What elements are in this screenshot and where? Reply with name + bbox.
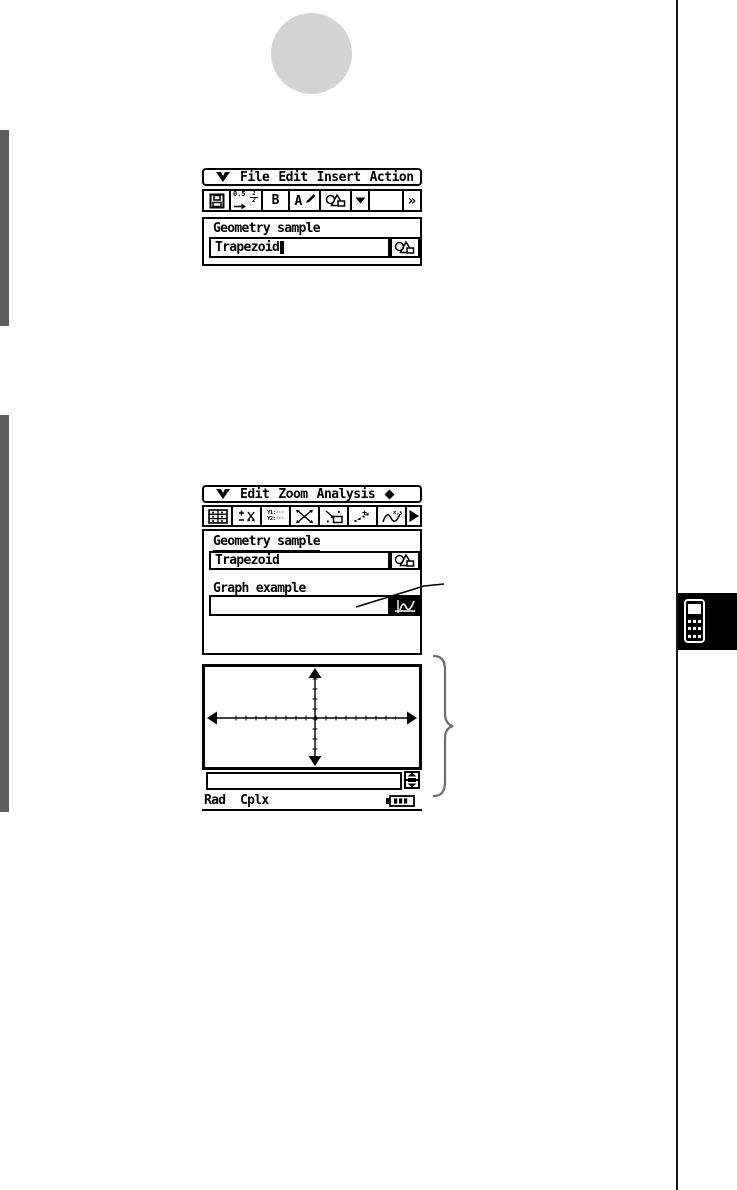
double-chevron-right-icon: » — [408, 193, 416, 209]
bold-button[interactable]: B — [263, 191, 290, 210]
screen2-geometry-link-button[interactable] — [390, 551, 420, 570]
xy-label: x,y — [393, 510, 402, 516]
zoom-box-icon — [324, 509, 344, 524]
bold-label: B — [272, 193, 280, 208]
screen2-title-label: Geometry sample — [213, 534, 320, 551]
geometry-shapes-icon — [394, 240, 416, 255]
toolbar-next-button[interactable] — [407, 507, 420, 525]
shapes-icon — [325, 193, 347, 208]
classpad-menu-icon[interactable] — [215, 488, 231, 500]
triangle-right-icon — [408, 509, 420, 523]
trace-dots-icon — [353, 509, 373, 524]
classpad-menu-icon[interactable] — [215, 171, 231, 183]
convert-arrow-icon — [234, 203, 246, 210]
menu-item-edit[interactable]: Edit — [240, 487, 269, 502]
graph-message-box[interactable] — [206, 772, 402, 790]
menu-item-zoom[interactable]: Zoom — [278, 487, 307, 502]
trace-button[interactable] — [349, 507, 378, 525]
table-icon — [208, 509, 228, 524]
frac-stack: 12 — [250, 191, 258, 204]
screen1-geometry-link-button[interactable] — [390, 237, 420, 258]
screen2-name-field[interactable]: Trapezoid — [209, 551, 390, 570]
zoom-fit-button[interactable] — [291, 507, 320, 525]
screen1-content-panel: Geometry sample Trapezoid — [202, 217, 422, 266]
zoom-box-button[interactable] — [320, 507, 349, 525]
graph-axes — [205, 667, 419, 767]
screen1-name-field[interactable]: Trapezoid — [209, 237, 390, 258]
chapter-tab — [678, 593, 737, 650]
manual-page: File Edit Insert Action 0.5 12 B — [0, 0, 737, 1190]
frac-den: 2 — [250, 197, 258, 204]
fraction-convert-button[interactable]: 0.5 12 — [231, 191, 263, 210]
menu-item-insert[interactable]: Insert — [317, 170, 361, 185]
diamond-menu-icon[interactable] — [384, 489, 395, 500]
spinner-down-button[interactable] — [404, 779, 420, 789]
frac-decimal: 0.5 — [233, 190, 246, 198]
screen1-menu-bar: File Edit Insert Action — [202, 168, 422, 186]
curly-brace — [429, 651, 457, 801]
geometry-shapes-icon — [394, 553, 416, 568]
x-axis-right-arrow — [407, 712, 417, 725]
plus-minus-swap-icon — [237, 509, 257, 524]
scroll-spinner — [404, 771, 420, 789]
curve-xy-icon: x,y — [382, 509, 402, 524]
menu-item-analysis[interactable]: Analysis — [317, 487, 376, 502]
toolbar-more-button[interactable]: » — [404, 191, 420, 210]
arrow-down-icon — [406, 780, 418, 788]
menu-item-edit[interactable]: Edit — [278, 170, 307, 185]
swap-button[interactable] — [233, 507, 262, 525]
screen2-menu-bar: Edit Zoom Analysis — [202, 485, 422, 503]
table-button[interactable] — [204, 507, 233, 525]
calculator-icon-keys — [688, 618, 701, 640]
status-bar-underline — [202, 809, 422, 811]
left-margin-bar-2 — [0, 415, 9, 812]
toolbar-dropdown-button[interactable] — [352, 191, 370, 210]
font-attributes-button[interactable]: A — [290, 191, 321, 210]
arrow-up-icon — [406, 772, 418, 780]
calculator-icon-screen — [688, 604, 701, 614]
draw-shapes-button[interactable] — [321, 191, 352, 210]
text-cursor — [280, 241, 284, 254]
screen2-name-value: Trapezoid — [215, 553, 279, 568]
y-editor-icon: Y1:··· Y2:··· — [267, 510, 284, 522]
menu-item-file[interactable]: File — [240, 170, 269, 185]
floppy-disk-icon — [209, 193, 225, 209]
y2-label: Y2:··· — [267, 516, 284, 522]
frac-num: 1 — [252, 190, 256, 197]
y-axis-top-arrow — [309, 668, 322, 678]
battery-icon — [386, 795, 415, 807]
screen2-toolbar: Y1:··· Y2:··· — [202, 505, 422, 527]
screen1-toolbar: 0.5 12 B A — [202, 189, 422, 212]
x-axis-left-arrow — [207, 712, 217, 725]
pencil-icon — [305, 192, 317, 204]
sketch-button[interactable]: x,y — [378, 507, 407, 525]
status-angle-mode[interactable]: Rad — [204, 793, 225, 808]
toolbar-spacer — [370, 191, 404, 210]
fraction-convert-icon: 0.5 12 — [233, 191, 259, 210]
left-margin-bar-1 — [0, 130, 9, 326]
graph-editor-button[interactable]: Y1:··· Y2:··· — [262, 507, 291, 525]
y-axis-bottom-arrow — [309, 756, 322, 766]
calculator-icon — [684, 599, 705, 643]
menu-item-action[interactable]: Action — [370, 170, 414, 185]
page-decoration-circle — [271, 13, 352, 94]
screen1-title-label: Geometry sample — [213, 221, 320, 236]
chevron-down-icon — [355, 197, 366, 204]
graph-window — [202, 664, 422, 770]
screen1-name-value: Trapezoid — [215, 240, 279, 255]
save-button[interactable] — [204, 191, 231, 210]
font-edit-icon: A — [293, 192, 317, 210]
callout-line — [350, 578, 450, 614]
font-letter: A — [295, 194, 303, 209]
zoom-expand-icon — [295, 509, 314, 524]
status-complex-mode[interactable]: Cplx — [240, 793, 269, 808]
